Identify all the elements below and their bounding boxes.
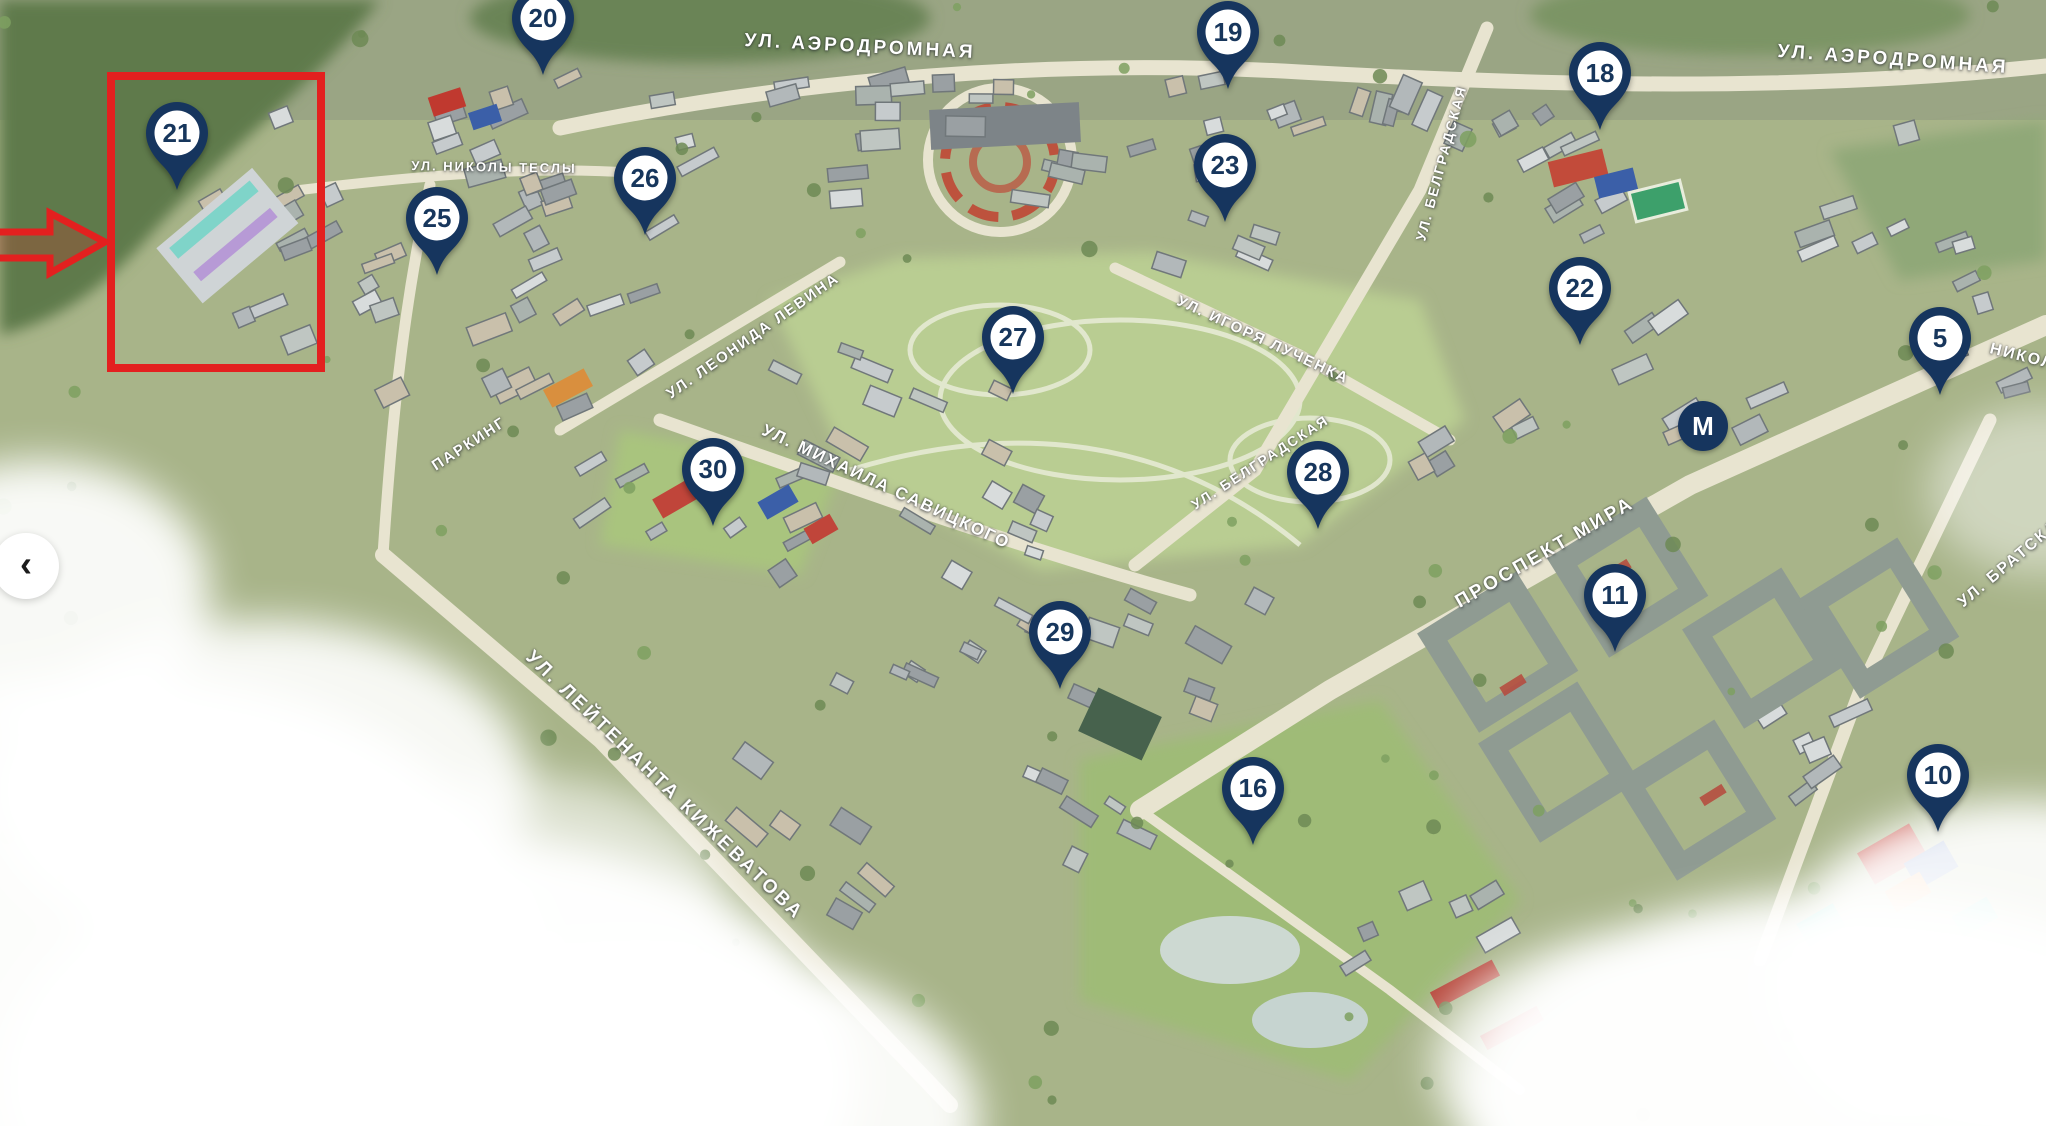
map-pin-30[interactable]: 30 <box>680 436 746 528</box>
svg-text:18: 18 <box>1586 58 1615 88</box>
svg-text:27: 27 <box>999 322 1028 352</box>
metro-icon: М <box>1678 401 1728 456</box>
svg-text:16: 16 <box>1239 773 1268 803</box>
svg-text:21: 21 <box>163 118 192 148</box>
map-viewport: УЛ. АЭРОДРОМНАЯУЛ. АЭРОДРОМНАЯУЛ. НИКОЛЫ… <box>0 0 2046 1126</box>
svg-text:23: 23 <box>1211 150 1240 180</box>
svg-text:26: 26 <box>631 163 660 193</box>
svg-text:22: 22 <box>1566 273 1595 303</box>
map-pin-18[interactable]: 18 <box>1567 40 1633 132</box>
svg-text:М: М <box>1692 411 1714 441</box>
map-pin-10[interactable]: 10 <box>1905 742 1971 834</box>
svg-text:30: 30 <box>699 454 728 484</box>
map-pin-20[interactable]: 20 <box>510 0 576 77</box>
map-pin-26[interactable]: 26 <box>612 145 678 237</box>
svg-text:5: 5 <box>1933 323 1947 353</box>
map-pin-29[interactable]: 29 <box>1027 599 1093 691</box>
highlight-box <box>107 72 325 372</box>
svg-text:25: 25 <box>423 203 452 233</box>
highlight-arrow-icon <box>0 205 122 285</box>
map-pin-16[interactable]: 16 <box>1220 755 1286 847</box>
map-pin-11[interactable]: 11 <box>1582 562 1648 654</box>
map-pin-19[interactable]: 19 <box>1195 0 1261 91</box>
chevron-left-icon: ‹ <box>20 546 32 582</box>
svg-text:19: 19 <box>1214 17 1243 47</box>
svg-text:11: 11 <box>1601 580 1629 610</box>
svg-text:28: 28 <box>1304 457 1333 487</box>
map-pin-28[interactable]: 28 <box>1285 439 1351 531</box>
map-pin-25[interactable]: 25 <box>404 185 470 277</box>
map-pin-27[interactable]: 27 <box>980 304 1046 396</box>
svg-text:29: 29 <box>1046 617 1075 647</box>
map-pin-23[interactable]: 23 <box>1192 132 1258 224</box>
map-pin-21[interactable]: 21 <box>144 100 210 192</box>
map-pin-22[interactable]: 22 <box>1547 255 1613 347</box>
map-pin-5[interactable]: 5 <box>1907 305 1973 397</box>
svg-text:10: 10 <box>1924 760 1953 790</box>
svg-text:20: 20 <box>529 3 558 33</box>
